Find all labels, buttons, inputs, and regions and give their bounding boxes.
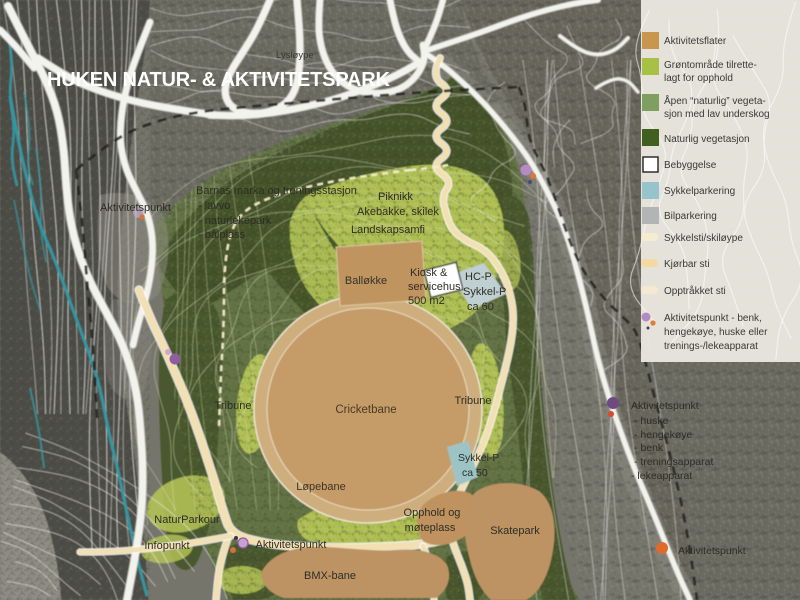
svg-text:500 m2: 500 m2 xyxy=(408,295,445,307)
svg-text:Aktivitetspunkt: Aktivitetspunkt xyxy=(256,539,327,551)
svg-text:Naturlig vegetasjon: Naturlig vegetasjon xyxy=(664,134,750,145)
svg-text:Aktivitetsflater: Aktivitetsflater xyxy=(664,36,727,47)
svg-text:Opptråkket sti: Opptråkket sti xyxy=(664,285,726,297)
svg-text:lagt for opphold: lagt for opphold xyxy=(664,73,733,84)
svg-text:Landskapsamfi: Landskapsamfi xyxy=(351,224,425,236)
svg-text:- bålplass: - bålplass xyxy=(198,229,246,241)
svg-text:- benk: - benk xyxy=(634,442,664,454)
svg-text:Bebyggelse: Bebyggelse xyxy=(664,160,717,171)
svg-text:Sykkel-P: Sykkel-P xyxy=(463,286,506,298)
svg-text:ca 60: ca 60 xyxy=(467,301,494,313)
svg-text:Aktivitetspunkt - benk,: Aktivitetspunkt - benk, xyxy=(664,313,762,324)
svg-text:Akebakke, skilek: Akebakke, skilek xyxy=(357,206,439,218)
svg-text:ca 50: ca 50 xyxy=(462,467,488,479)
svg-text:NaturParkour: NaturParkour xyxy=(154,514,220,526)
svg-text:- hengekøye: - hengekøye xyxy=(634,429,693,441)
svg-text:Sykkelparkering: Sykkelparkering xyxy=(664,186,735,197)
svg-text:- lavvo: - lavvo xyxy=(198,200,230,212)
svg-text:Kiosk &: Kiosk & xyxy=(410,267,448,279)
svg-text:servicehus: servicehus xyxy=(408,281,461,293)
svg-text:møteplass: møteplass xyxy=(405,522,456,534)
svg-text:Infopunkt: Infopunkt xyxy=(144,540,189,552)
svg-text:Kjørbar sti: Kjørbar sti xyxy=(664,259,710,270)
svg-text:Løpebane: Løpebane xyxy=(296,481,346,493)
svg-text:- naturlekepark: - naturlekepark xyxy=(198,215,272,227)
svg-text:Cricketbane: Cricketbane xyxy=(335,404,396,416)
svg-text:Barnas marka og treningsstasjo: Barnas marka og treningsstasjon xyxy=(196,185,357,197)
svg-text:Lysløype: Lysløype xyxy=(276,50,314,61)
svg-text:Skatepark: Skatepark xyxy=(490,525,540,537)
svg-text:HC-P: HC-P xyxy=(465,271,492,283)
svg-text:Bilparkering: Bilparkering xyxy=(664,211,717,222)
svg-text:Aktivitetspunkt: Aktivitetspunkt xyxy=(678,545,746,557)
svg-text:Grøntområde tilrette-: Grøntområde tilrette- xyxy=(664,59,757,71)
svg-text:HUKEN NATUR- & AKTIVITETSPARK: HUKEN NATUR- & AKTIVITETSPARK xyxy=(47,69,390,91)
svg-text:Aktivitetspunkt: Aktivitetspunkt xyxy=(631,400,699,412)
svg-text:trenings-/lekeapparat: trenings-/lekeapparat xyxy=(664,341,758,352)
svg-text:Sykkel-P: Sykkel-P xyxy=(458,452,499,464)
svg-text:Tribune: Tribune xyxy=(215,400,252,412)
svg-text:Sykkelsti/skiløype: Sykkelsti/skiløype xyxy=(664,233,743,244)
svg-text:- treningsapparat: - treningsapparat xyxy=(634,456,713,468)
svg-text:Piknikk: Piknikk xyxy=(378,191,413,203)
svg-text:- lekeapparat: - lekeapparat xyxy=(631,470,692,482)
svg-text:sjon med lav underskog: sjon med lav underskog xyxy=(664,109,770,120)
svg-text:Tribune: Tribune xyxy=(455,395,492,407)
svg-text:hengekøye, huske eller: hengekøye, huske eller xyxy=(664,327,768,338)
svg-text:- huske: - huske xyxy=(634,415,669,427)
svg-text:BMX-bane: BMX-bane xyxy=(304,570,356,582)
svg-text:Balløkke: Balløkke xyxy=(345,275,387,287)
svg-text:Åpen “naturlig” vegeta-: Åpen “naturlig” vegeta- xyxy=(664,94,766,107)
svg-text:Opphold og: Opphold og xyxy=(404,507,461,519)
svg-text:Aktivitetspunkt: Aktivitetspunkt xyxy=(100,202,171,214)
